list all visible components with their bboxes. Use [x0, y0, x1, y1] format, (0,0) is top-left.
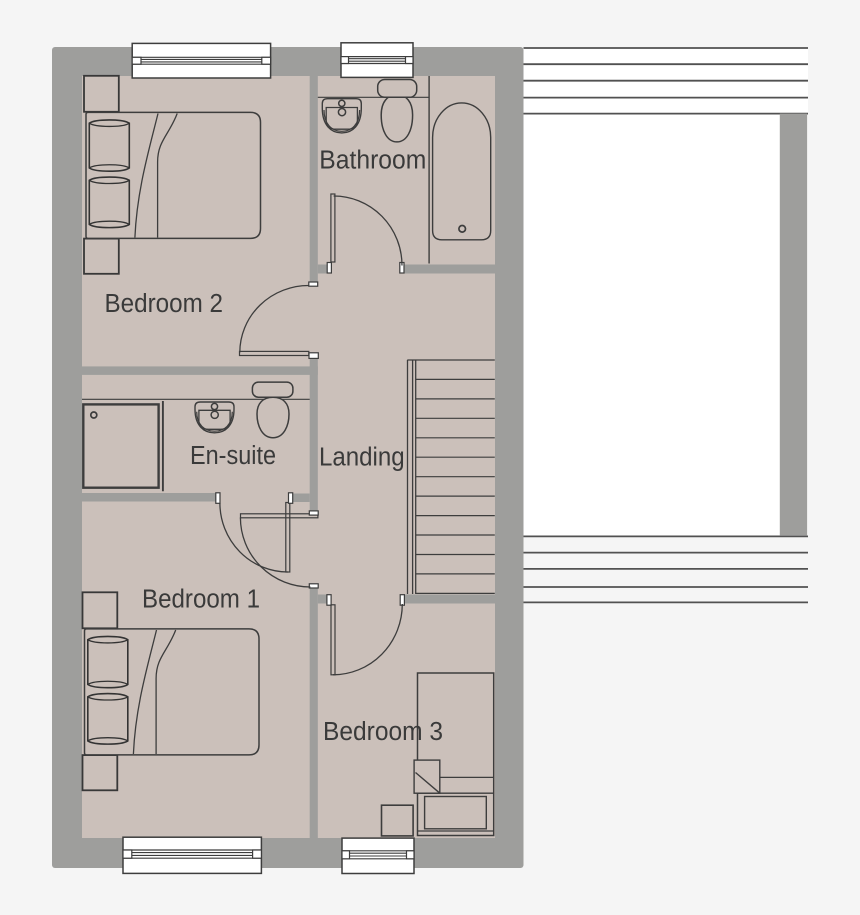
svg-text:Bedroom 1: Bedroom 1: [142, 586, 260, 614]
svg-text:Bedroom 3: Bedroom 3: [323, 718, 443, 746]
svg-text:Bedroom 2: Bedroom 2: [105, 290, 224, 318]
svg-text:Bathroom: Bathroom: [319, 146, 426, 174]
svg-text:En-suite: En-suite: [190, 442, 276, 470]
svg-text:Landing: Landing: [319, 444, 405, 472]
